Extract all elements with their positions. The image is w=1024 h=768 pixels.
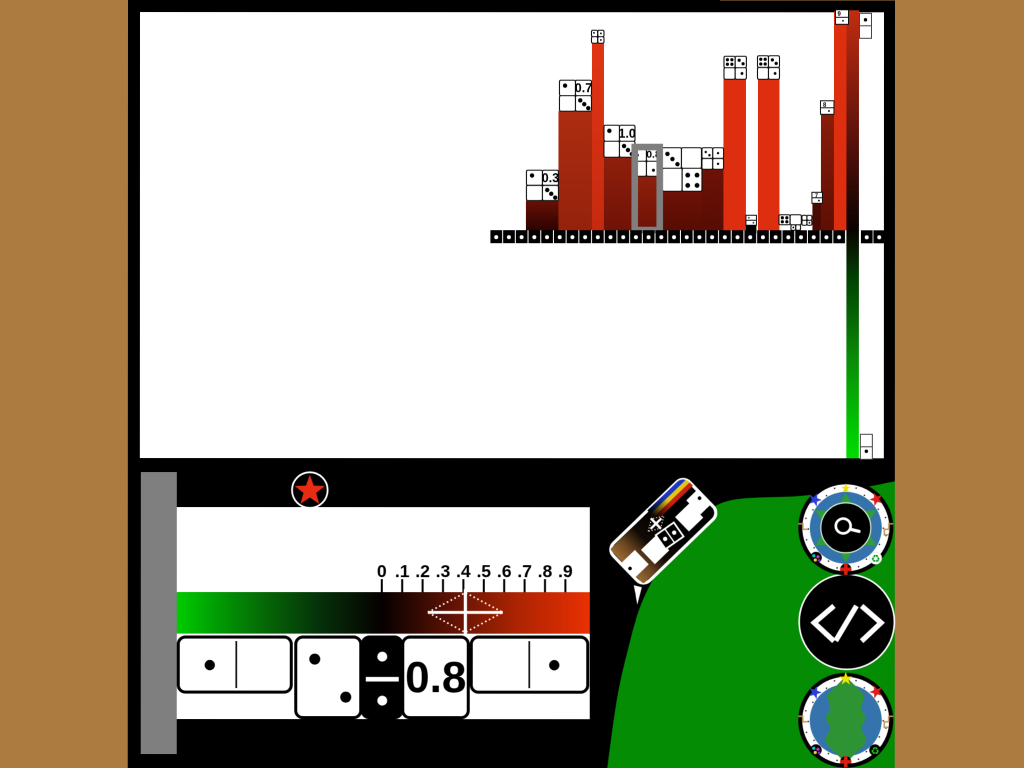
svg-text:0: 0 bbox=[377, 561, 387, 581]
svg-text:1.0: 1.0 bbox=[618, 127, 635, 141]
svg-text:7: 7 bbox=[815, 193, 818, 199]
svg-text:.9: .9 bbox=[558, 561, 573, 581]
svg-text:.4: .4 bbox=[456, 561, 471, 581]
svg-text:.8: .8 bbox=[538, 561, 553, 581]
svg-text:0.8: 0.8 bbox=[405, 653, 466, 702]
svg-text:.6: .6 bbox=[497, 561, 512, 581]
svg-text:.7: .7 bbox=[517, 561, 532, 581]
svg-text:0.3: 0.3 bbox=[542, 171, 559, 185]
svg-text:.5: .5 bbox=[476, 561, 491, 581]
svg-text:♻: ♻ bbox=[871, 553, 880, 565]
svg-text:.3: .3 bbox=[436, 561, 451, 581]
svg-text:.1: .1 bbox=[395, 561, 410, 581]
svg-text:0.7: 0.7 bbox=[575, 81, 592, 95]
svg-text:♻: ♻ bbox=[871, 746, 880, 757]
svg-text:.2: .2 bbox=[415, 561, 430, 581]
